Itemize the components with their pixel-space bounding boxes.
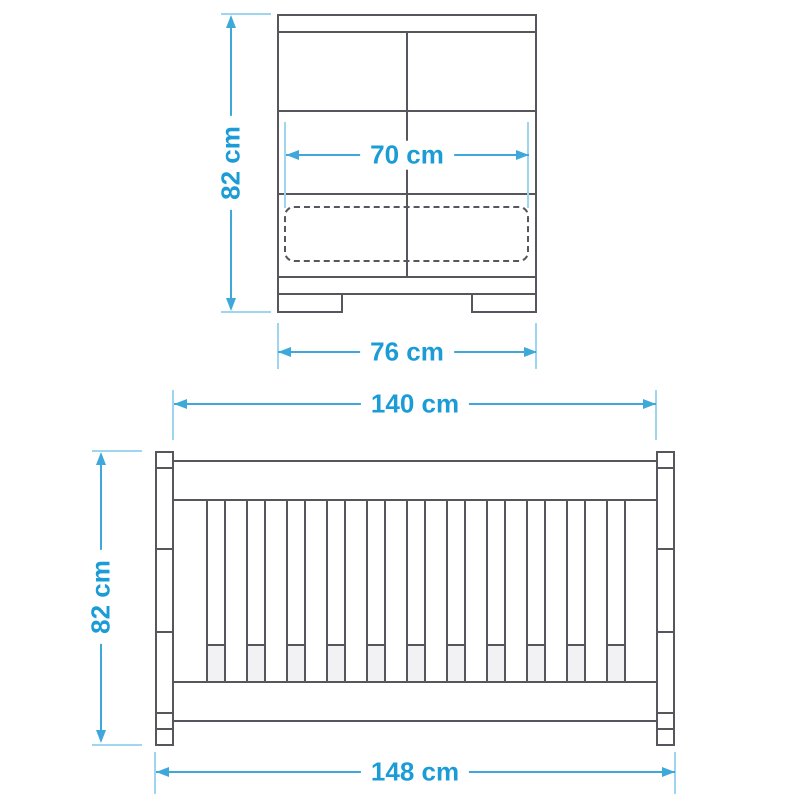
mattress-through-gap: [288, 644, 304, 681]
slat-gap: [246, 501, 266, 681]
dimension-line: [230, 198, 232, 301]
post-joint-line: [658, 712, 673, 714]
post-joint-line: [157, 631, 172, 633]
side-view-outer-length-label: 148 cm: [361, 758, 469, 787]
extension-line: [277, 323, 279, 369]
side-view-bottom-rail: [172, 681, 658, 722]
dimension-line: [100, 462, 102, 553]
mattress-through-gap: [408, 644, 424, 681]
slat-gap: [406, 501, 426, 681]
post-joint-line: [658, 631, 673, 633]
arrow-right-icon: [524, 347, 537, 357]
mattress-through-gap: [368, 644, 384, 681]
arrow-down-icon: [226, 298, 236, 311]
dimension-tick: [221, 311, 271, 313]
arrow-right-icon: [516, 150, 529, 160]
arrow-up-icon: [226, 15, 236, 28]
extension-line: [527, 122, 529, 208]
mattress-through-gap: [208, 644, 224, 681]
arrow-down-icon: [96, 730, 106, 743]
post-joint-line: [157, 467, 172, 469]
slat-gap: [606, 501, 626, 681]
slat-gap: [366, 501, 386, 681]
side-view-top-rail: [172, 460, 658, 501]
post-joint-line: [658, 467, 673, 469]
end-view-inner-width-label: 70 cm: [360, 141, 454, 170]
post-joint-line: [157, 712, 172, 714]
slat-gap: [326, 501, 346, 681]
arrow-left-icon: [278, 347, 291, 357]
side-view-inner-length-label: 140 cm: [361, 390, 469, 419]
arrow-left-icon: [174, 399, 187, 409]
mattress-dashed-outline: [284, 206, 529, 262]
slat-gap: [566, 501, 586, 681]
side-view-height-label: 82 cm: [87, 550, 116, 644]
dimension-drawing: 82 cm 70 cm 76 cm: [0, 0, 800, 800]
slat-gap: [286, 501, 306, 681]
arrow-left-icon: [156, 767, 169, 777]
extension-line: [172, 390, 174, 440]
end-view-left-foot: [277, 293, 343, 313]
slat-gap: [446, 501, 466, 681]
post-joint-line: [658, 548, 673, 550]
mattress-through-gap: [488, 644, 504, 681]
mattress-through-gap: [568, 644, 584, 681]
end-view-outer-width-label: 76 cm: [360, 338, 454, 367]
mattress-through-gap: [528, 644, 544, 681]
mattress-through-gap: [328, 644, 344, 681]
post-joint-line: [157, 728, 172, 730]
dimension-line: [230, 24, 232, 128]
post-joint-line: [658, 728, 673, 730]
slat-gap: [526, 501, 546, 681]
slat-gap: [486, 501, 506, 681]
arrow-left-icon: [286, 150, 299, 160]
post-joint-line: [157, 548, 172, 550]
arrow-right-icon: [662, 767, 675, 777]
slat-gap: [206, 501, 226, 681]
extension-line: [655, 390, 657, 440]
extension-line: [284, 122, 286, 208]
dimension-tick: [92, 744, 142, 746]
mattress-through-gap: [248, 644, 264, 681]
mattress-through-gap: [448, 644, 464, 681]
arrow-up-icon: [96, 452, 106, 465]
end-view-height-label: 82 cm: [217, 116, 246, 210]
extension-line: [535, 323, 537, 369]
side-view-right-post: [656, 451, 675, 746]
mattress-through-gap: [608, 644, 624, 681]
arrow-right-icon: [643, 399, 656, 409]
end-view-right-foot: [471, 293, 537, 313]
dimension-line: [100, 638, 102, 733]
